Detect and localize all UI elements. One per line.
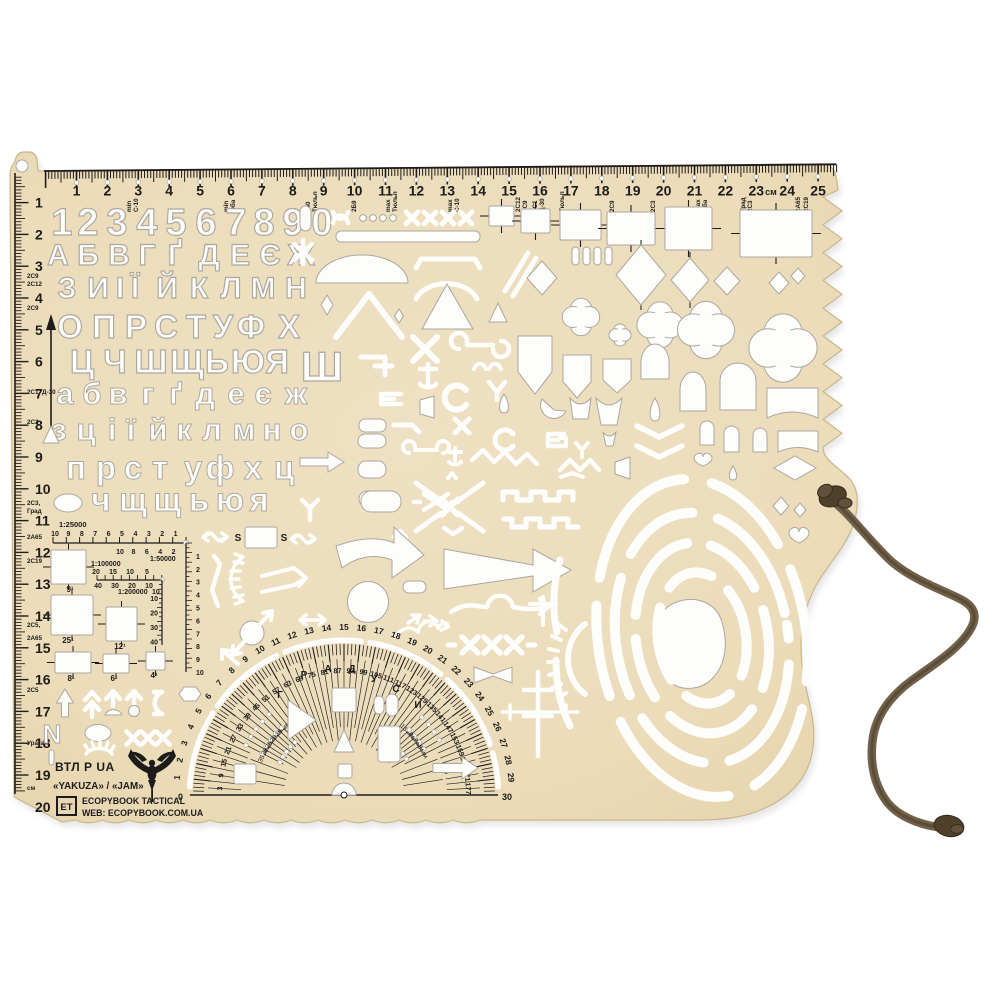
- svg-text:1:50000: 1:50000: [150, 556, 176, 563]
- svg-text:2С9: 2С9: [27, 305, 39, 312]
- svg-text:см: см: [27, 785, 36, 792]
- svg-text:С: С: [154, 308, 178, 345]
- svg-text:2: 2: [196, 567, 200, 574]
- svg-text:1: 1: [51, 202, 72, 244]
- svg-text:ї: ї: [126, 412, 137, 447]
- svg-text:4: 4: [165, 183, 173, 199]
- svg-text:25¹: 25¹: [62, 636, 74, 645]
- svg-text:20: 20: [35, 799, 51, 815]
- svg-text:15: 15: [339, 622, 349, 632]
- svg-text:И: И: [87, 272, 109, 305]
- svg-text:2: 2: [160, 531, 164, 538]
- svg-text:2С19: 2С19: [27, 558, 43, 565]
- svg-text:11: 11: [378, 183, 393, 199]
- svg-text:Щ: Щ: [170, 343, 204, 380]
- svg-text:30: 30: [150, 625, 158, 632]
- svg-text:2С5,: 2С5,: [27, 622, 41, 629]
- svg-text:н: н: [263, 412, 282, 447]
- svg-text:9: 9: [66, 531, 70, 538]
- svg-text:о: о: [290, 412, 309, 447]
- svg-text:Н: Н: [285, 272, 307, 305]
- svg-text:16: 16: [532, 183, 548, 199]
- svg-text:N: N: [43, 719, 62, 749]
- svg-text:є: є: [254, 376, 271, 411]
- svg-text:4: 4: [35, 290, 43, 306]
- svg-text:е: е: [227, 376, 244, 411]
- svg-text:0: 0: [311, 202, 332, 244]
- svg-text:9: 9: [35, 449, 43, 465]
- svg-text:S: S: [281, 533, 288, 544]
- svg-text:21: 21: [687, 183, 703, 199]
- svg-text:3: 3: [106, 202, 127, 244]
- svg-text:12: 12: [409, 183, 425, 199]
- svg-text:20: 20: [656, 183, 672, 199]
- svg-text:23: 23: [749, 183, 765, 199]
- svg-text:3: 3: [196, 580, 200, 587]
- svg-text:6: 6: [145, 549, 149, 556]
- svg-text:А: А: [47, 239, 69, 272]
- svg-text:7: 7: [93, 531, 97, 538]
- svg-text:Ш: Ш: [301, 343, 343, 390]
- svg-text:2А65: 2А65: [27, 635, 43, 642]
- svg-text:й: й: [148, 412, 167, 447]
- svg-text:5: 5: [35, 322, 43, 338]
- svg-text:У: У: [371, 674, 378, 685]
- svg-text:і: і: [108, 412, 117, 447]
- svg-text:3: 3: [35, 258, 43, 274]
- svg-text:2А65: 2А65: [27, 534, 43, 541]
- svg-text:177: 177: [463, 782, 473, 794]
- svg-text:Ш: Ш: [134, 343, 167, 380]
- svg-text:ю: ю: [216, 481, 244, 518]
- svg-text:14: 14: [321, 622, 332, 633]
- svg-text:Й: Й: [156, 271, 178, 305]
- svg-text:Тюльп: Тюльп: [392, 191, 399, 212]
- svg-text:15: 15: [35, 640, 51, 656]
- svg-text:11: 11: [35, 513, 50, 529]
- svg-text:Ю: Ю: [231, 343, 265, 380]
- svg-text:13: 13: [35, 576, 51, 592]
- svg-text:25: 25: [810, 183, 826, 199]
- svg-text:Ч: Ч: [103, 343, 126, 380]
- svg-text:В: В: [108, 239, 130, 272]
- svg-text:Д: Д: [348, 664, 355, 675]
- svg-text:Тюльп: Тюльп: [559, 191, 566, 212]
- svg-text:9¹: 9¹: [66, 585, 73, 594]
- svg-text:18: 18: [594, 183, 610, 199]
- svg-text:10: 10: [347, 183, 363, 199]
- svg-text:10: 10: [196, 670, 204, 677]
- svg-text:16: 16: [356, 622, 367, 633]
- svg-text:8: 8: [196, 644, 200, 651]
- svg-text:4: 4: [196, 593, 200, 600]
- svg-text:4: 4: [158, 549, 162, 556]
- svg-text:«YAKUZA» / «JAM»: «YAKUZA» / «JAM»: [53, 781, 144, 792]
- svg-text:4: 4: [133, 531, 137, 538]
- svg-text:щ: щ: [153, 481, 181, 518]
- svg-text:4: 4: [136, 202, 157, 244]
- svg-text:ґ: ґ: [169, 376, 183, 411]
- svg-text:И: И: [414, 700, 421, 711]
- svg-text:Ф: Ф: [237, 308, 265, 345]
- svg-text:2С9: 2С9: [27, 273, 39, 280]
- svg-text:15: 15: [501, 183, 517, 199]
- svg-text:3: 3: [134, 183, 142, 199]
- svg-text:л: л: [202, 412, 222, 447]
- svg-text:8¹: 8¹: [67, 674, 74, 683]
- svg-text:ВТЛ Р UA: ВТЛ Р UA: [55, 760, 115, 774]
- svg-text:Г: Г: [138, 239, 155, 272]
- svg-text:М: М: [251, 272, 276, 305]
- svg-text:Ь: Ь: [205, 343, 229, 380]
- svg-text:6: 6: [107, 531, 111, 538]
- svg-text:1: 1: [196, 554, 200, 561]
- svg-text:22: 22: [718, 183, 734, 199]
- svg-text:У: У: [213, 308, 234, 345]
- svg-text:ц: ц: [76, 412, 95, 447]
- svg-text:2С9: 2С9: [609, 200, 616, 212]
- svg-text:6: 6: [195, 202, 216, 244]
- svg-text:2: 2: [172, 549, 176, 556]
- svg-text:7: 7: [225, 202, 246, 244]
- svg-text:87: 87: [333, 666, 341, 675]
- svg-text:40: 40: [94, 583, 102, 590]
- svg-text:ц: ц: [274, 449, 294, 486]
- svg-text:п: п: [66, 449, 86, 486]
- svg-text:Д: Д: [198, 239, 219, 272]
- svg-text:2С3: 2С3: [27, 419, 39, 426]
- svg-text:max: max: [385, 199, 392, 212]
- svg-text:99: 99: [359, 667, 368, 677]
- svg-text:Ц: Ц: [70, 343, 94, 380]
- svg-text:6: 6: [35, 354, 43, 370]
- svg-text:8: 8: [289, 183, 297, 199]
- svg-text:10: 10: [152, 589, 160, 596]
- svg-text:1:100000: 1:100000: [91, 561, 121, 568]
- svg-text:1: 1: [35, 195, 43, 211]
- svg-text:19: 19: [625, 183, 641, 199]
- svg-text:1:25000: 1:25000: [59, 520, 87, 529]
- svg-text:Г: Г: [277, 690, 283, 701]
- svg-text:16: 16: [35, 672, 51, 688]
- svg-text:І: І: [116, 272, 124, 305]
- svg-text:10: 10: [126, 569, 134, 576]
- svg-text:5: 5: [145, 569, 149, 576]
- svg-text:10: 10: [150, 596, 158, 603]
- svg-text:Ґ: Ґ: [168, 238, 183, 272]
- svg-text:13: 13: [440, 183, 456, 199]
- svg-text:5: 5: [196, 606, 200, 613]
- svg-text:5: 5: [120, 531, 124, 538]
- svg-text:Х: Х: [278, 308, 300, 345]
- svg-text:Р: Р: [125, 308, 147, 345]
- svg-text:2С3,: 2С3,: [27, 500, 41, 507]
- svg-text:7: 7: [196, 631, 200, 638]
- svg-text:8: 8: [253, 202, 274, 244]
- svg-text:5: 5: [196, 183, 204, 199]
- svg-text:5: 5: [165, 202, 186, 244]
- svg-text:2С3: 2С3: [650, 200, 657, 212]
- svg-text:см: см: [765, 187, 777, 197]
- svg-text:2С12: 2С12: [27, 281, 43, 288]
- svg-text:24: 24: [779, 183, 795, 199]
- svg-text:О: О: [57, 308, 83, 345]
- svg-text:29: 29: [506, 772, 517, 783]
- svg-text:г: г: [142, 376, 155, 411]
- svg-text:20: 20: [150, 611, 158, 618]
- svg-text:Е: Е: [230, 239, 250, 272]
- svg-text:40: 40: [150, 640, 158, 647]
- svg-text:6: 6: [227, 183, 235, 199]
- svg-text:ЕТ: ЕТ: [60, 802, 72, 813]
- svg-text:10: 10: [116, 549, 124, 556]
- svg-text:6¹: 6¹: [110, 674, 117, 683]
- svg-text:я: я: [248, 481, 268, 518]
- svg-text:Град: Град: [27, 508, 42, 515]
- svg-text:Ї: Ї: [130, 272, 140, 305]
- svg-text:к: к: [176, 412, 192, 447]
- svg-text:З: З: [58, 272, 77, 305]
- svg-text:К: К: [190, 272, 209, 305]
- svg-text:10: 10: [35, 481, 51, 497]
- svg-text:м: м: [233, 412, 256, 447]
- svg-text:19: 19: [35, 767, 51, 783]
- svg-text:3: 3: [147, 531, 151, 538]
- svg-text:9: 9: [196, 657, 200, 664]
- svg-text:Б: Б: [77, 239, 99, 272]
- svg-text:30: 30: [502, 792, 512, 802]
- svg-text:15: 15: [109, 569, 117, 576]
- svg-text:2Б9: 2Б9: [351, 200, 358, 212]
- svg-text:б: б: [82, 376, 101, 411]
- svg-text:2: 2: [77, 202, 98, 244]
- svg-text:S: S: [235, 533, 242, 544]
- svg-text:ч: ч: [91, 481, 110, 518]
- svg-text:17: 17: [35, 703, 51, 719]
- svg-text:8: 8: [131, 549, 135, 556]
- svg-text:а: а: [56, 376, 74, 411]
- svg-text:Л: Л: [220, 272, 241, 305]
- svg-text:9: 9: [320, 183, 328, 199]
- svg-text:10: 10: [51, 531, 59, 538]
- svg-text:Є: Є: [259, 239, 280, 272]
- svg-text:WEB: ECOPYBOOK.COM.UA: WEB: ECOPYBOOK.COM.UA: [82, 808, 204, 818]
- svg-text:8: 8: [80, 531, 84, 538]
- svg-text:А: А: [324, 664, 331, 675]
- svg-text:2: 2: [35, 226, 43, 242]
- svg-text:2С5: 2С5: [27, 687, 39, 694]
- svg-text:Р: Р: [301, 670, 308, 681]
- svg-text:д: д: [195, 376, 215, 411]
- svg-text:3: 3: [215, 786, 224, 790]
- svg-text:14: 14: [470, 183, 486, 199]
- svg-text:1: 1: [174, 531, 178, 538]
- svg-text:1:200000: 1:200000: [118, 589, 148, 596]
- svg-text:4¹: 4¹: [150, 671, 157, 680]
- svg-text:П: П: [92, 308, 116, 345]
- svg-text:20: 20: [92, 569, 100, 576]
- svg-text:ECOPYBOOK TACTICAL: ECOPYBOOK TACTICAL: [82, 796, 186, 806]
- svg-text:щ: щ: [119, 481, 147, 518]
- svg-text:6: 6: [196, 618, 200, 625]
- svg-text:Т: Т: [186, 308, 206, 345]
- svg-text:в: в: [108, 376, 127, 411]
- svg-text:7: 7: [258, 183, 266, 199]
- svg-text:С: С: [392, 684, 399, 695]
- svg-text:ь: ь: [189, 481, 209, 518]
- svg-text:Я: Я: [265, 343, 289, 380]
